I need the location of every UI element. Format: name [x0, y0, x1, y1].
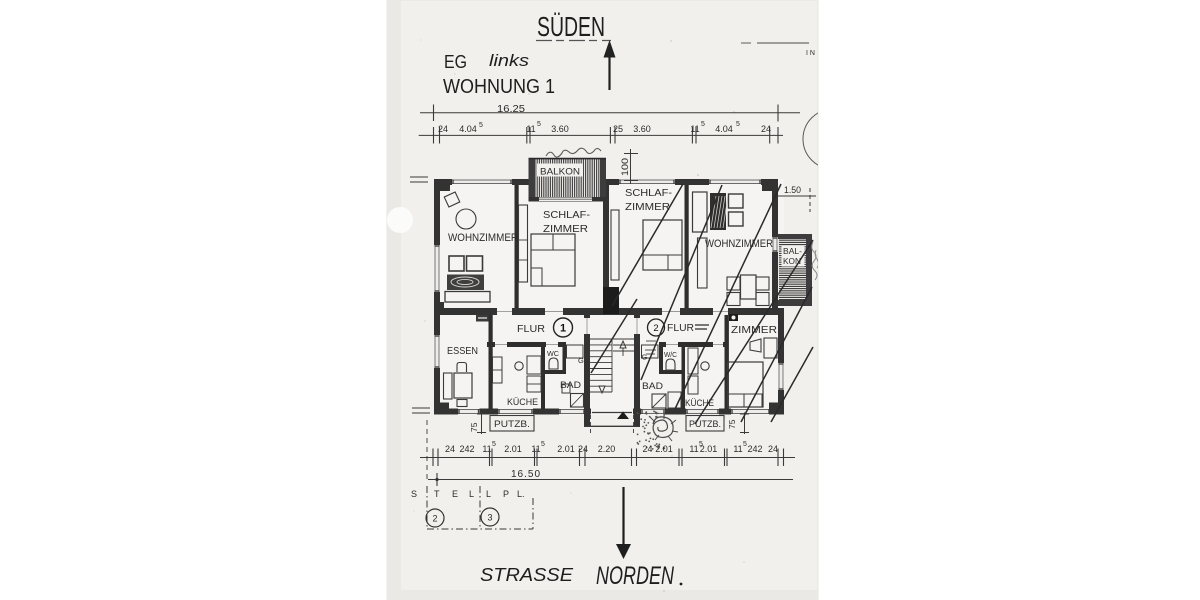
svg-text:T: T — [434, 489, 440, 499]
svg-text:25: 25 — [613, 124, 623, 134]
svg-text:5: 5 — [479, 122, 483, 129]
svg-text:16.50: 16.50 — [511, 469, 541, 480]
svg-text:PUTZB.: PUTZB. — [689, 419, 721, 429]
svg-text:G: G — [578, 356, 584, 365]
svg-text:2.20: 2.20 — [598, 444, 616, 454]
svg-text:11: 11 — [689, 444, 698, 454]
svg-text:5: 5 — [492, 441, 496, 448]
svg-text:2.01: 2.01 — [655, 444, 673, 454]
svg-text:KÜCHE: KÜCHE — [685, 398, 714, 408]
svg-text:5: 5 — [736, 121, 740, 128]
svg-text:FLUR: FLUR — [667, 322, 694, 334]
svg-text:2: 2 — [653, 323, 658, 334]
svg-text:24: 24 — [445, 444, 455, 454]
svg-text:SÜDEN: SÜDEN — [537, 11, 605, 42]
svg-text:WC: WC — [547, 351, 559, 358]
svg-text:ZIMMER: ZIMMER — [625, 201, 670, 213]
svg-text:I N: I N — [806, 50, 815, 57]
svg-text:WOHNUNG 1: WOHNUNG 1 — [443, 76, 555, 98]
svg-text:STRASSE: STRASSE — [480, 565, 574, 585]
svg-text:PUTZB.: PUTZB. — [494, 419, 530, 429]
svg-text:2.01: 2.01 — [557, 444, 575, 454]
svg-text:L: L — [469, 489, 474, 499]
svg-text:1: 1 — [560, 323, 566, 335]
svg-text:EG: EG — [444, 52, 467, 72]
svg-text:3.60: 3.60 — [551, 124, 569, 134]
svg-text:NORDEN: NORDEN — [596, 562, 675, 590]
svg-text:KÜCHE: KÜCHE — [507, 397, 538, 407]
svg-text:L.: L. — [517, 489, 525, 499]
svg-text:16.25: 16.25 — [497, 104, 525, 115]
svg-text:P: P — [503, 489, 509, 499]
svg-text:links: links — [489, 51, 530, 70]
svg-text:2: 2 — [432, 514, 437, 524]
svg-text:11: 11 — [526, 124, 535, 134]
svg-text:FLUR: FLUR — [517, 323, 545, 335]
svg-text:ZIMMER: ZIMMER — [731, 324, 777, 336]
svg-text:75: 75 — [469, 422, 479, 432]
svg-text:100: 100 — [620, 158, 630, 176]
svg-text:WOHNZIMMER: WOHNZIMMER — [705, 238, 773, 250]
svg-text:24: 24 — [642, 444, 652, 454]
svg-text:11: 11 — [733, 444, 742, 454]
svg-text:BAL-: BAL- — [783, 247, 802, 256]
svg-text:242: 242 — [747, 444, 762, 454]
svg-text:S: S — [411, 489, 417, 499]
svg-text:24: 24 — [438, 124, 448, 134]
svg-text:5: 5 — [699, 441, 703, 448]
svg-text:ESSEN: ESSEN — [447, 346, 478, 357]
svg-text:2.01: 2.01 — [504, 444, 522, 454]
svg-text:4.04: 4.04 — [459, 124, 477, 134]
svg-text:ZIMMER: ZIMMER — [543, 223, 588, 235]
svg-text:24: 24 — [768, 444, 778, 454]
svg-text:SCHLAF-: SCHLAF- — [625, 187, 673, 199]
svg-text:W/C: W/C — [664, 352, 677, 359]
svg-text:BALKON: BALKON — [540, 167, 580, 178]
svg-text:5: 5 — [541, 441, 545, 448]
svg-text:5: 5 — [537, 121, 541, 128]
svg-text:5: 5 — [743, 441, 747, 448]
svg-text:E: E — [452, 489, 458, 499]
svg-text:11: 11 — [531, 444, 540, 454]
svg-text:5: 5 — [701, 121, 705, 128]
svg-text:3.60: 3.60 — [633, 124, 651, 134]
svg-text:1.50: 1.50 — [784, 185, 801, 195]
svg-text:75: 75 — [727, 419, 737, 429]
svg-text:242: 242 — [459, 444, 474, 454]
svg-text:3: 3 — [487, 513, 492, 523]
svg-text:11: 11 — [482, 444, 491, 454]
svg-text:WOHNZIMMER: WOHNZIMMER — [448, 232, 518, 244]
svg-text:BAD: BAD — [560, 380, 582, 390]
svg-text:L: L — [486, 489, 491, 499]
svg-text:4.04: 4.04 — [715, 124, 733, 134]
svg-text:24: 24 — [761, 124, 771, 134]
svg-text:BAD: BAD — [642, 381, 664, 391]
svg-text:SCHLAF-: SCHLAF- — [543, 209, 591, 221]
svg-text:11: 11 — [690, 124, 699, 134]
